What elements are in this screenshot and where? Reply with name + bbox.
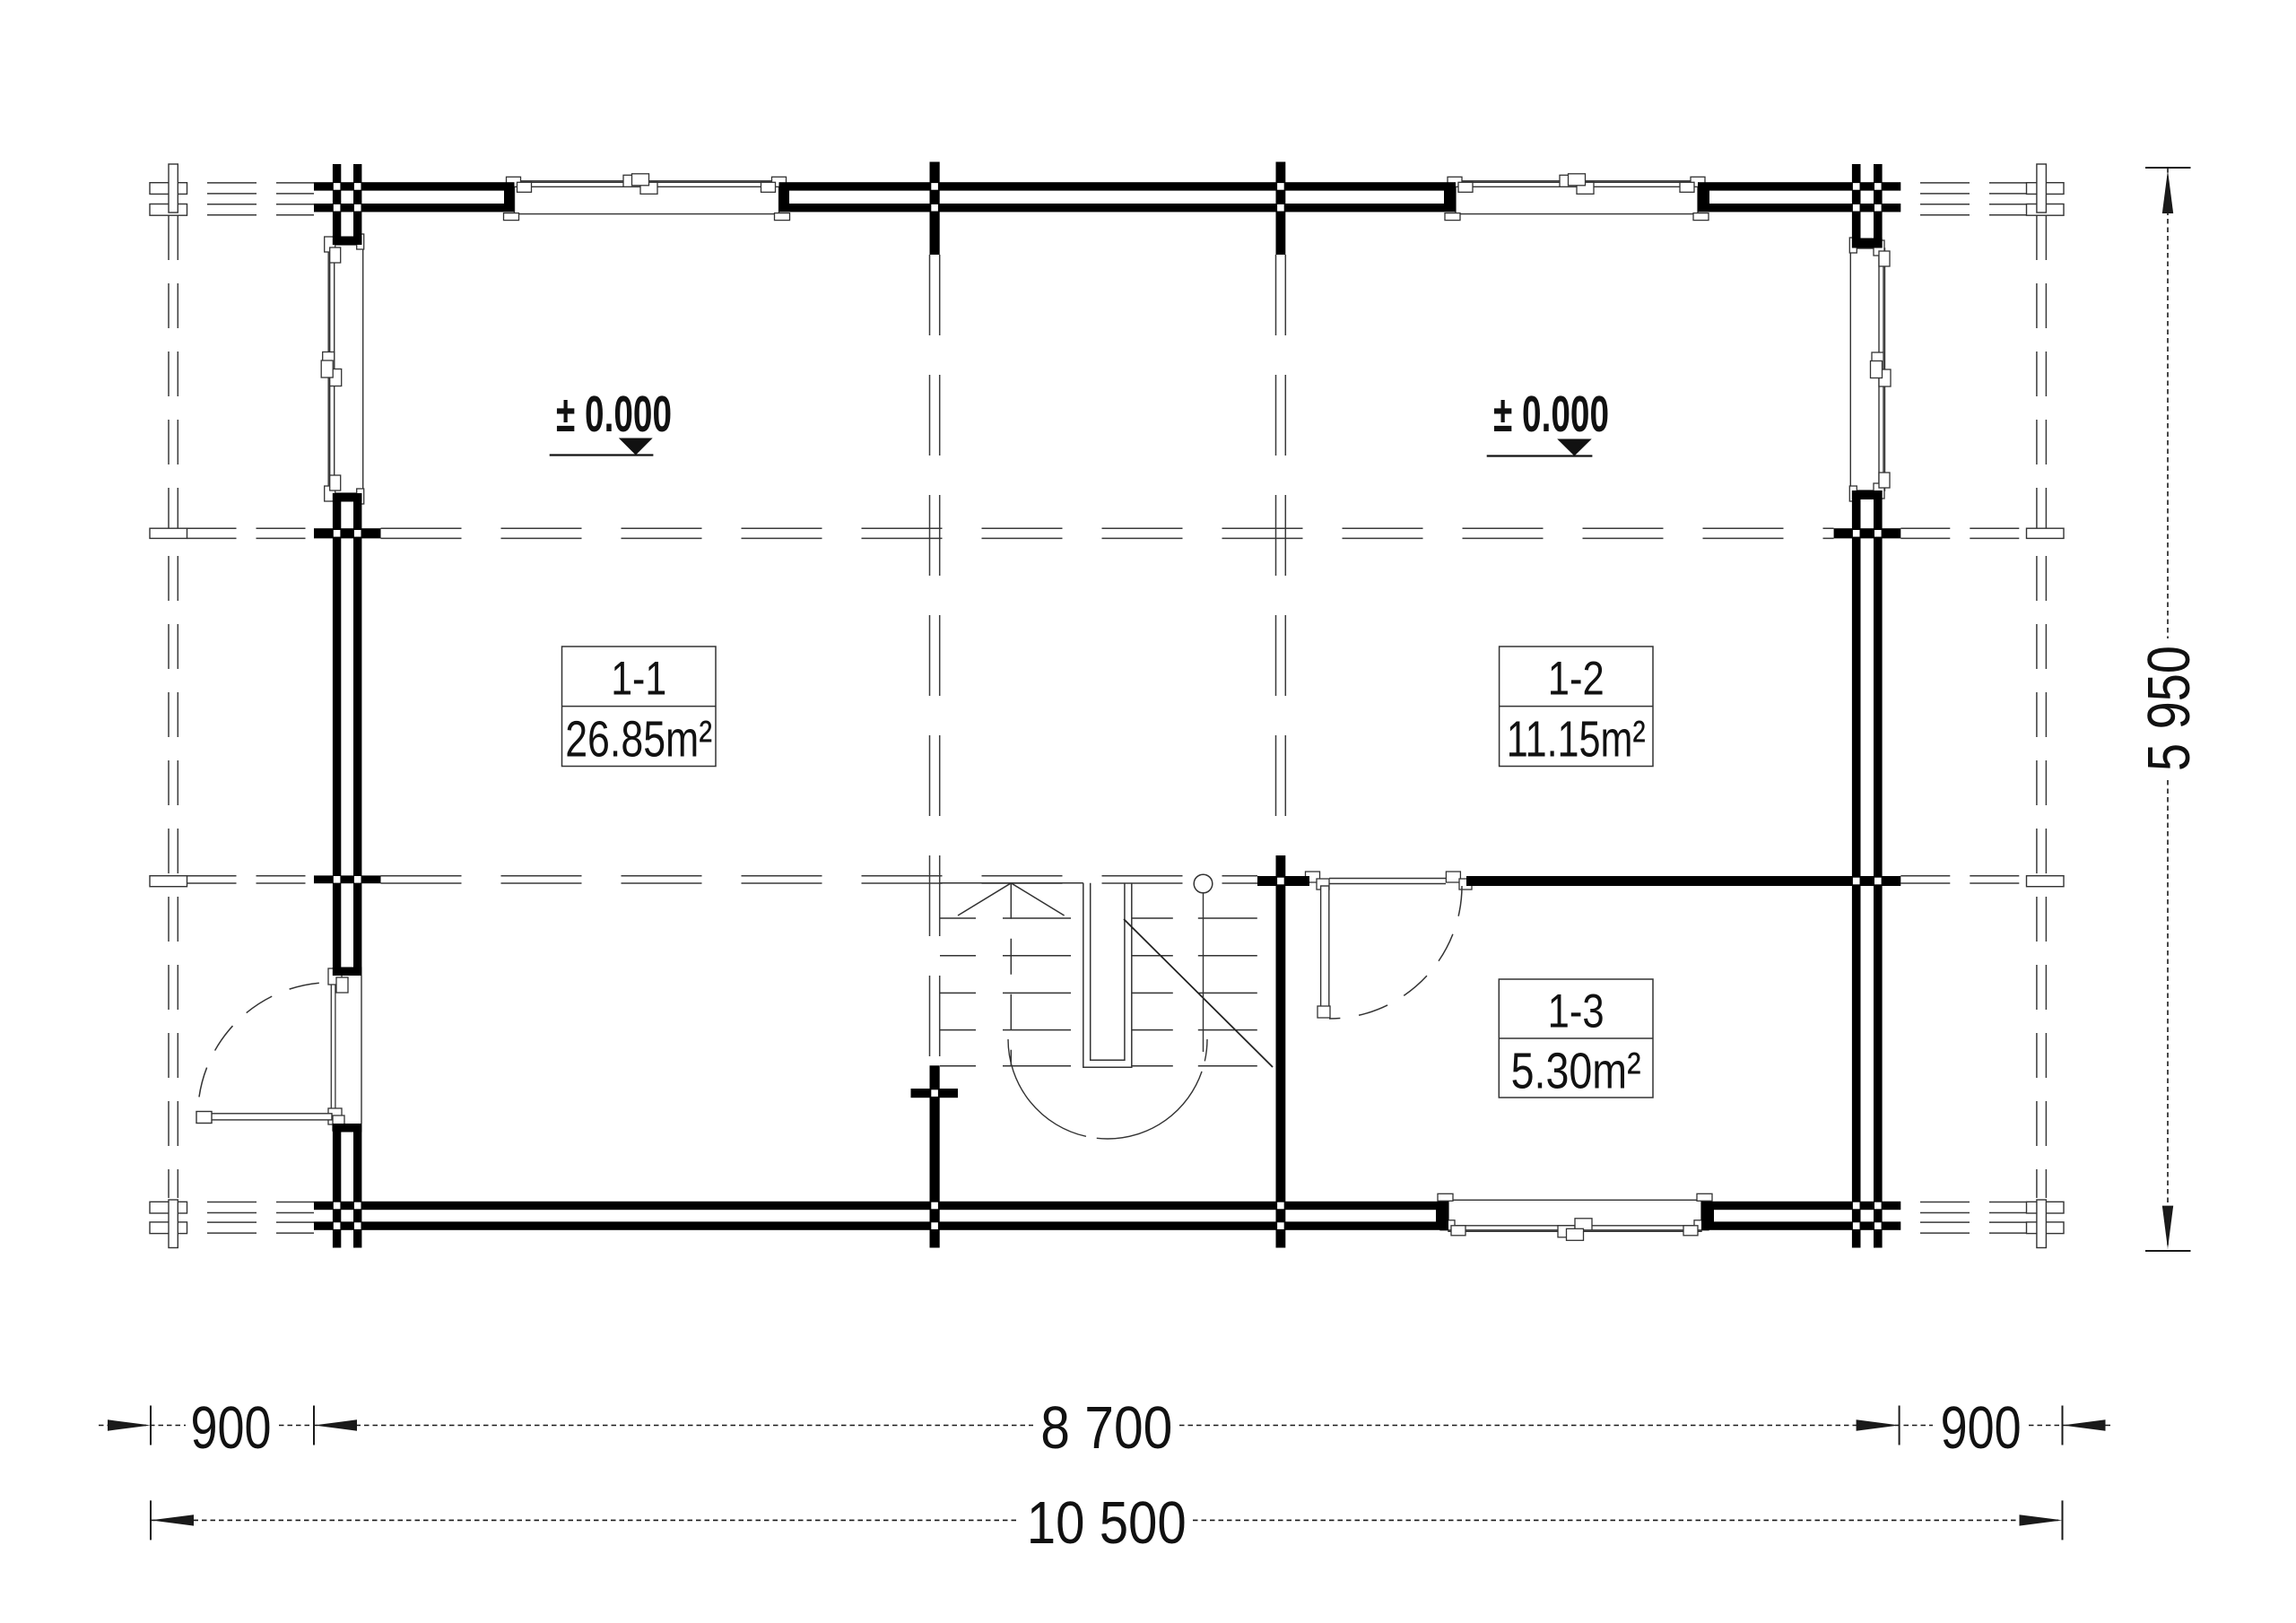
svg-text:8 700: 8 700 — [1040, 1394, 1172, 1462]
svg-text:11.15m²: 11.15m² — [1507, 711, 1646, 768]
svg-text:5.30m²: 5.30m² — [1511, 1043, 1641, 1100]
svg-text:± 0.000: ± 0.000 — [556, 386, 672, 443]
svg-text:26.85m²: 26.85m² — [565, 711, 712, 768]
svg-text:900: 900 — [1941, 1394, 2022, 1462]
svg-text:1-3: 1-3 — [1548, 985, 1605, 1038]
svg-text:10 500: 10 500 — [1027, 1489, 1187, 1557]
svg-text:5 950: 5 950 — [2135, 646, 2203, 771]
svg-text:900: 900 — [191, 1394, 272, 1462]
svg-text:± 0.000: ± 0.000 — [1493, 386, 1609, 443]
svg-text:1-1: 1-1 — [611, 653, 666, 706]
svg-text:1-2: 1-2 — [1548, 653, 1605, 706]
